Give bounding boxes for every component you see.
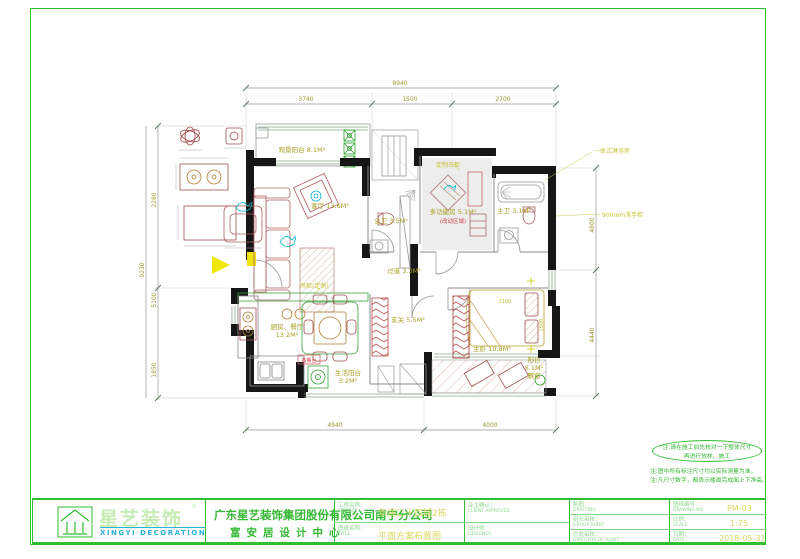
room-label-foyer: 玄关 5.5M² xyxy=(391,316,425,324)
date-label: 日期：DATE xyxy=(673,532,690,543)
svg-text:5100: 5100 xyxy=(151,292,158,307)
svg-text:1500: 1500 xyxy=(402,96,417,103)
logo-icon xyxy=(57,506,93,538)
tv-cabinet xyxy=(400,196,410,268)
service-balcony xyxy=(308,366,328,388)
logo-text-en: XINGYI DECORATION xyxy=(100,527,206,537)
company-center: 富安居设计中心 xyxy=(230,525,346,540)
note-oval: 注:请在施工前先核对一下整体尺寸 再进行放样、施工 xyxy=(652,440,762,462)
room-label-kitchen-dining: 厨房、餐厅13.2M² xyxy=(271,323,304,339)
foyer xyxy=(372,298,426,394)
svg-text:8940: 8940 xyxy=(392,80,407,87)
title-label: 图纸名称：TITLE xyxy=(338,526,366,537)
title-block: 星艺装饰 ® XINGYI DECORATION 广东星艺装饰集团股份有限公司南… xyxy=(32,498,766,545)
sofa xyxy=(254,188,290,300)
shoe-cabinet xyxy=(372,298,388,356)
svg-text:2280: 2280 xyxy=(151,192,158,207)
room-label-corridor: 过道 3.3M² xyxy=(387,267,421,275)
title-value: 平面方案布置图 xyxy=(378,529,441,542)
svg-text:4440: 4440 xyxy=(589,327,596,342)
room-label-master-bath: 主卫 3.1M² xyxy=(497,207,531,215)
bathtub xyxy=(498,182,544,202)
logo-reg-mark: ® xyxy=(191,503,197,510)
divider xyxy=(569,500,570,542)
drafting-label: 制图：DRAFTING xyxy=(573,502,596,513)
multi-room xyxy=(422,158,492,250)
divider xyxy=(669,500,670,542)
room-sublabel-multi: (改动区域) xyxy=(440,217,466,225)
note-line-3: 注:图中所有标注尺寸均以实际测量为准， xyxy=(650,466,756,475)
divider xyxy=(464,500,465,542)
wardrobe xyxy=(453,296,469,358)
plant-icon xyxy=(280,191,321,247)
svg-text:2700: 2700 xyxy=(495,96,510,103)
group-audit-label: 组长审核：GROUP AUDIT xyxy=(573,517,605,528)
drawing-no-label: 图纸编号：DRAWING NO xyxy=(673,502,703,513)
divider xyxy=(569,514,767,515)
annotation-shower: 一体式淋浴房 xyxy=(594,146,630,155)
project-value: 华润二十四城2栋 xyxy=(378,506,447,519)
svg-text:4000: 4000 xyxy=(482,422,497,429)
room-label-master-bedroom: 主卧 10.8M² xyxy=(473,345,511,353)
room-label-bedroom-balcony: 阳台5.1M²飘窗 xyxy=(525,356,544,380)
sink xyxy=(258,362,284,380)
annotation-vanity: 900mm洗手柜 xyxy=(602,210,643,219)
room-label-view-balcony: 观景阳台 8.1M² xyxy=(279,146,326,154)
note-line-4: 注:凡尺寸数字，都表示楼面完成面上下净高。 xyxy=(650,475,768,484)
ac-platform xyxy=(372,130,418,180)
stove-block xyxy=(180,164,228,190)
room-label-bath2: 公卫 3.5M² xyxy=(374,217,408,225)
designer-label: 设计师：DESIGNER xyxy=(468,526,491,537)
svg-text:2100: 2100 xyxy=(499,299,512,305)
divider xyxy=(569,529,767,530)
plant-block xyxy=(179,127,201,145)
annotation-serving: 备餐台 xyxy=(301,357,316,364)
annotation-cabinet: 吊柜(定制) xyxy=(300,281,329,290)
date-value: 2018-05-31 xyxy=(719,534,766,543)
svg-text:1850: 1850 xyxy=(151,362,158,377)
project-label: 工程名称：PROJECT xyxy=(338,503,366,514)
scale-value: 1:75 xyxy=(730,519,748,528)
svg-text:4940: 4940 xyxy=(327,422,342,429)
drawing-sheet: 3740 1500 2700 8940 2280 5100 1850 9230 … xyxy=(0,0,800,559)
room-label-living: 客厅 13.6M² xyxy=(311,202,349,210)
room-label-service-balcony: 生活阳台3.2M² xyxy=(335,369,361,385)
living-room-furniture xyxy=(254,173,410,312)
stool-block xyxy=(226,128,242,144)
svg-text:4800: 4800 xyxy=(589,217,596,232)
svg-text:9230: 9230 xyxy=(139,262,146,277)
drawing-no-value: PM-03 xyxy=(727,504,752,513)
scale-label: 比例：SCALE xyxy=(673,517,690,528)
svg-text:3740: 3740 xyxy=(298,96,313,103)
room-label-multi: 多功能房 5.1M² xyxy=(430,208,477,216)
coffee-table xyxy=(293,173,338,218)
annotation-wardrobe: 定制衣柜 xyxy=(436,160,460,169)
client-approved-label: 业主确认：CLIENT APPROVED xyxy=(468,503,510,514)
entry-arrow-icon xyxy=(212,252,256,274)
armchair-block xyxy=(224,202,262,242)
director-audit-label: 总监审核：DIRECTOR OF AUDIT xyxy=(573,532,619,543)
table-block xyxy=(184,206,236,240)
